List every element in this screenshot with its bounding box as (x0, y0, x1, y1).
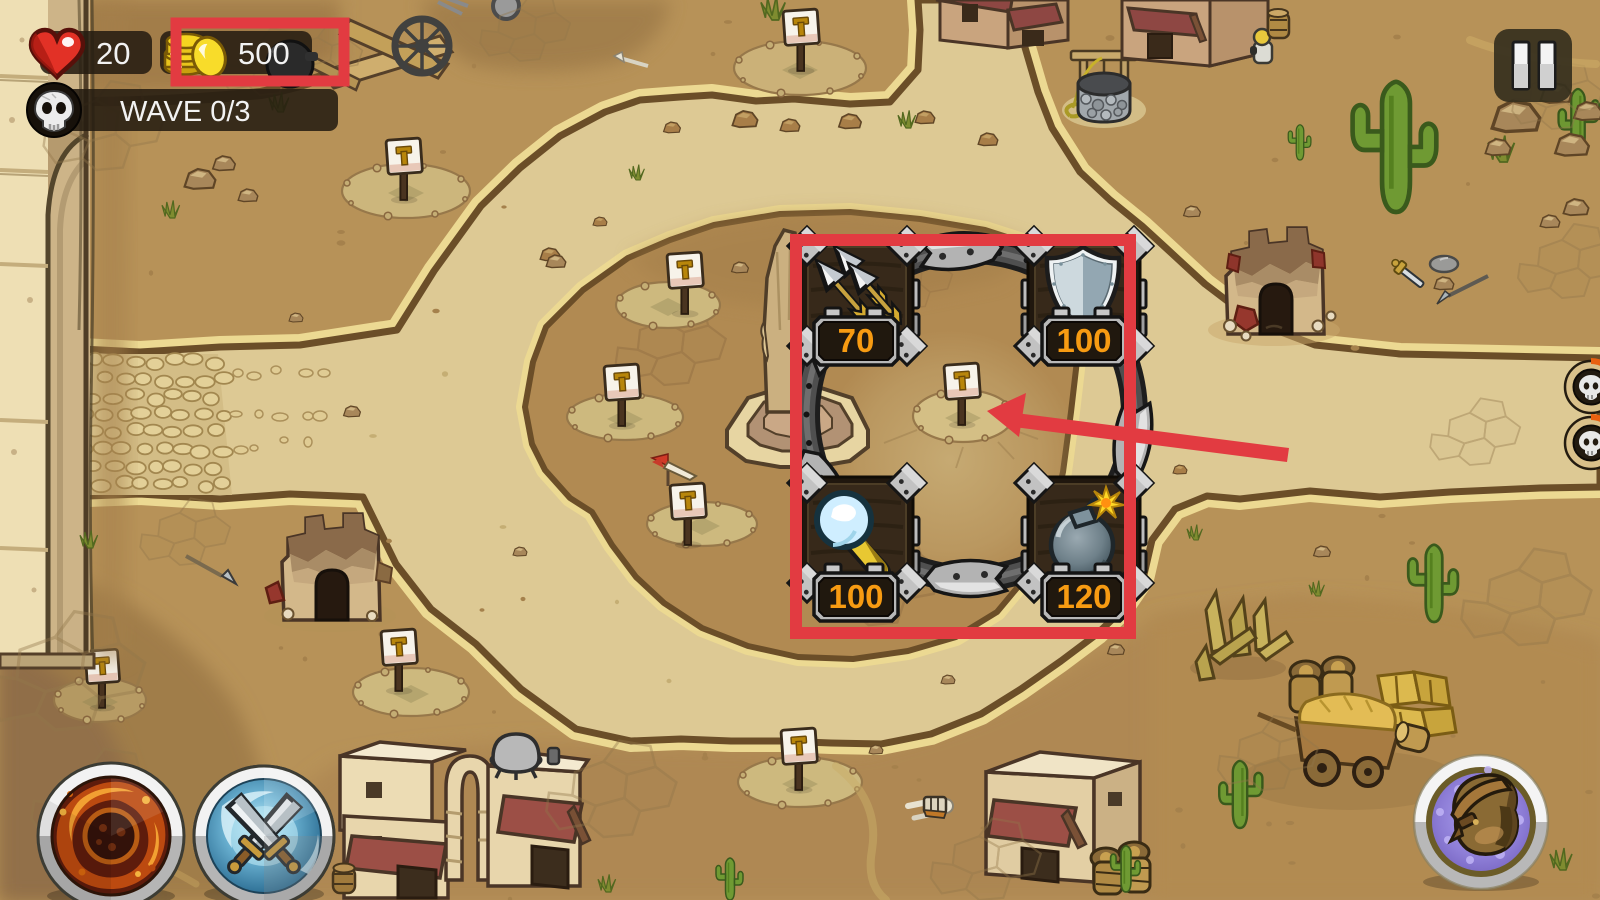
svg-text:WAVE 0/3: WAVE 0/3 (120, 96, 251, 128)
svg-text:500: 500 (238, 36, 290, 71)
svg-text:20: 20 (96, 36, 130, 71)
svg-text:70: 70 (838, 322, 875, 359)
svg-text:100: 100 (828, 578, 883, 615)
svg-text:120: 120 (1056, 578, 1111, 615)
svg-text:100: 100 (1056, 322, 1111, 359)
